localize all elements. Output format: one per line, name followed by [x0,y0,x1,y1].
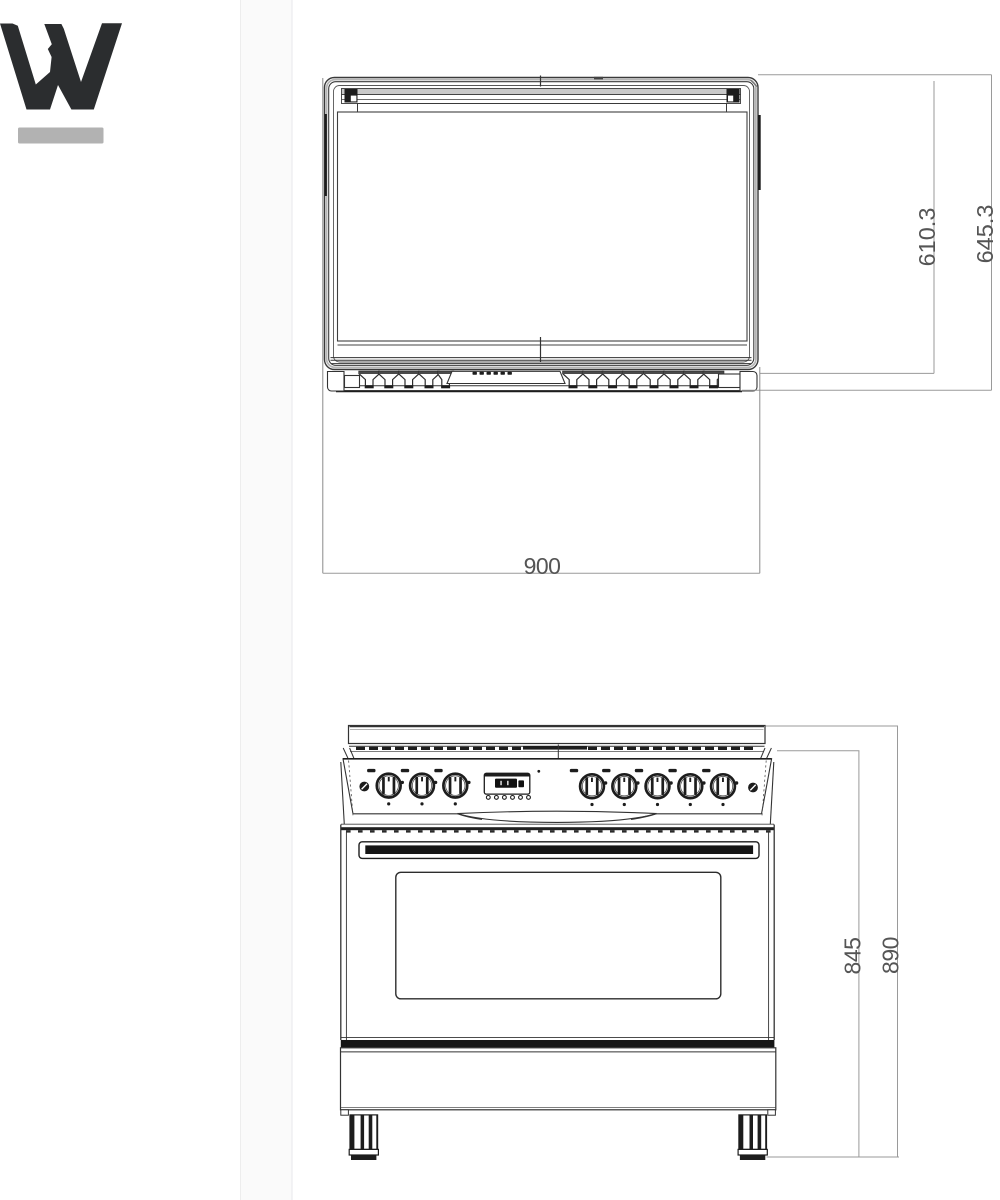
svg-text:845: 845 [839,938,865,975]
svg-text:610.3: 610.3 [914,208,940,267]
svg-text:890: 890 [877,937,903,974]
svg-text:900: 900 [524,553,561,579]
svg-text:645.3: 645.3 [972,205,998,264]
